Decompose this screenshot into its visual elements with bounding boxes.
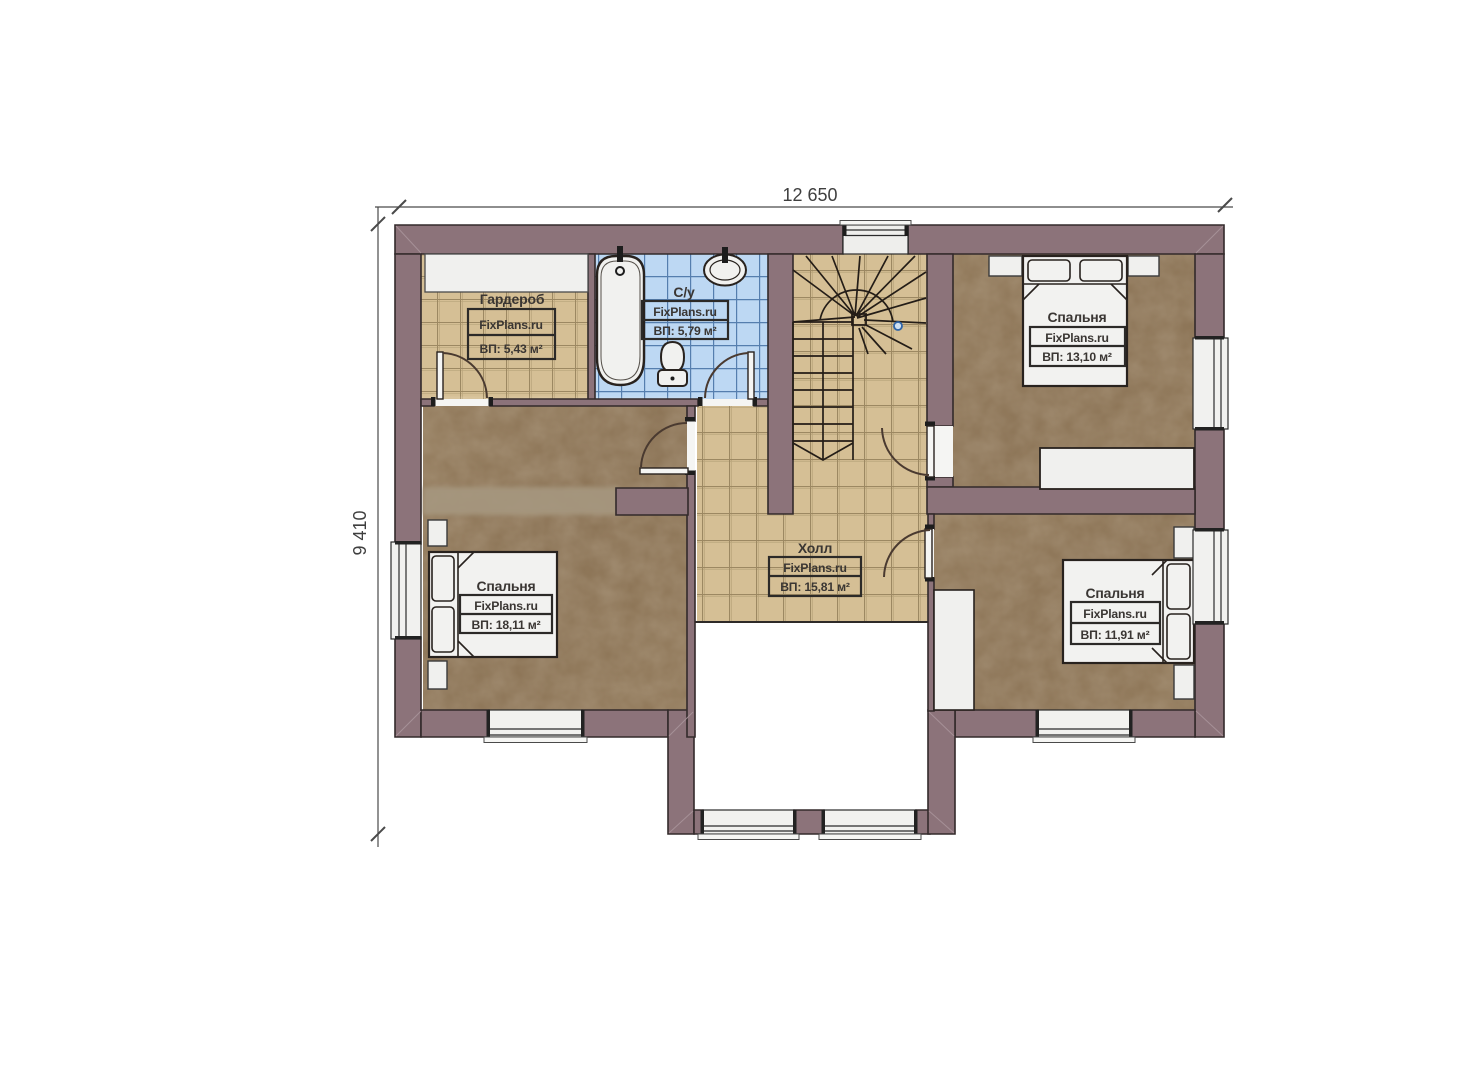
svg-text:12 650: 12 650 — [782, 185, 837, 205]
svg-text:Спальня: Спальня — [476, 578, 535, 594]
svg-text:ВП: 5,43 м²: ВП: 5,43 м² — [480, 342, 543, 356]
svg-text:FixPlans.ru: FixPlans.ru — [1045, 331, 1109, 345]
svg-text:ВП: 5,79 м²: ВП: 5,79 м² — [654, 324, 717, 338]
svg-text:Гардероб: Гардероб — [480, 291, 545, 307]
svg-text:FixPlans.ru: FixPlans.ru — [653, 305, 717, 319]
svg-text:ВП: 13,10 м²: ВП: 13,10 м² — [1042, 350, 1112, 364]
svg-text:FixPlans.ru: FixPlans.ru — [479, 318, 543, 332]
svg-text:Спальня: Спальня — [1085, 585, 1144, 601]
svg-text:ВП: 15,81 м²: ВП: 15,81 м² — [780, 580, 850, 594]
svg-text:С/у: С/у — [673, 284, 695, 300]
svg-text:Холл: Холл — [798, 540, 832, 556]
svg-text:ВП: 11,91 м²: ВП: 11,91 м² — [1081, 628, 1150, 642]
svg-text:FixPlans.ru: FixPlans.ru — [474, 599, 538, 613]
svg-text:9 410: 9 410 — [350, 510, 370, 555]
svg-text:ВП: 18,11 м²: ВП: 18,11 м² — [472, 618, 541, 632]
svg-text:Спальня: Спальня — [1047, 309, 1106, 325]
svg-text:FixPlans.ru: FixPlans.ru — [783, 561, 847, 575]
svg-text:FixPlans.ru: FixPlans.ru — [1083, 607, 1147, 621]
